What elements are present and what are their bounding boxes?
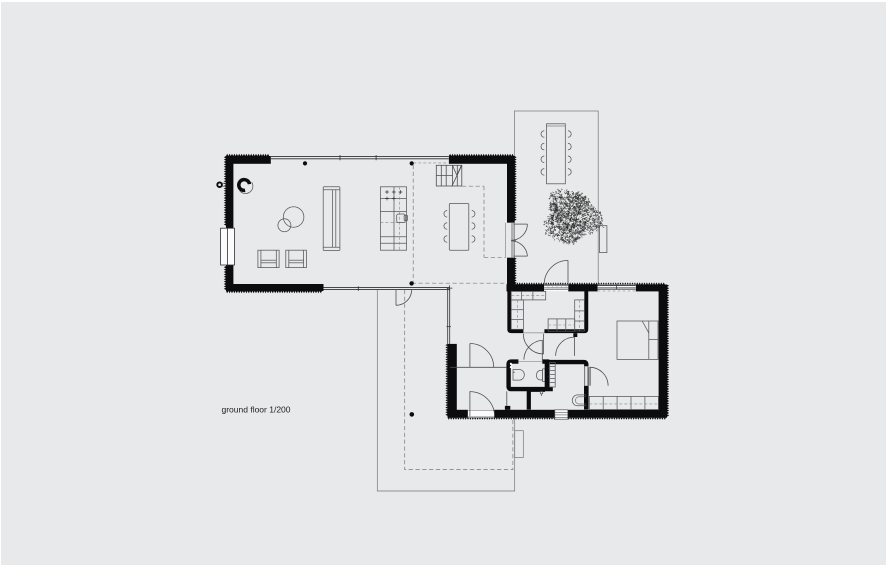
svg-text:ground floor 1/200: ground floor 1/200 bbox=[222, 405, 291, 415]
